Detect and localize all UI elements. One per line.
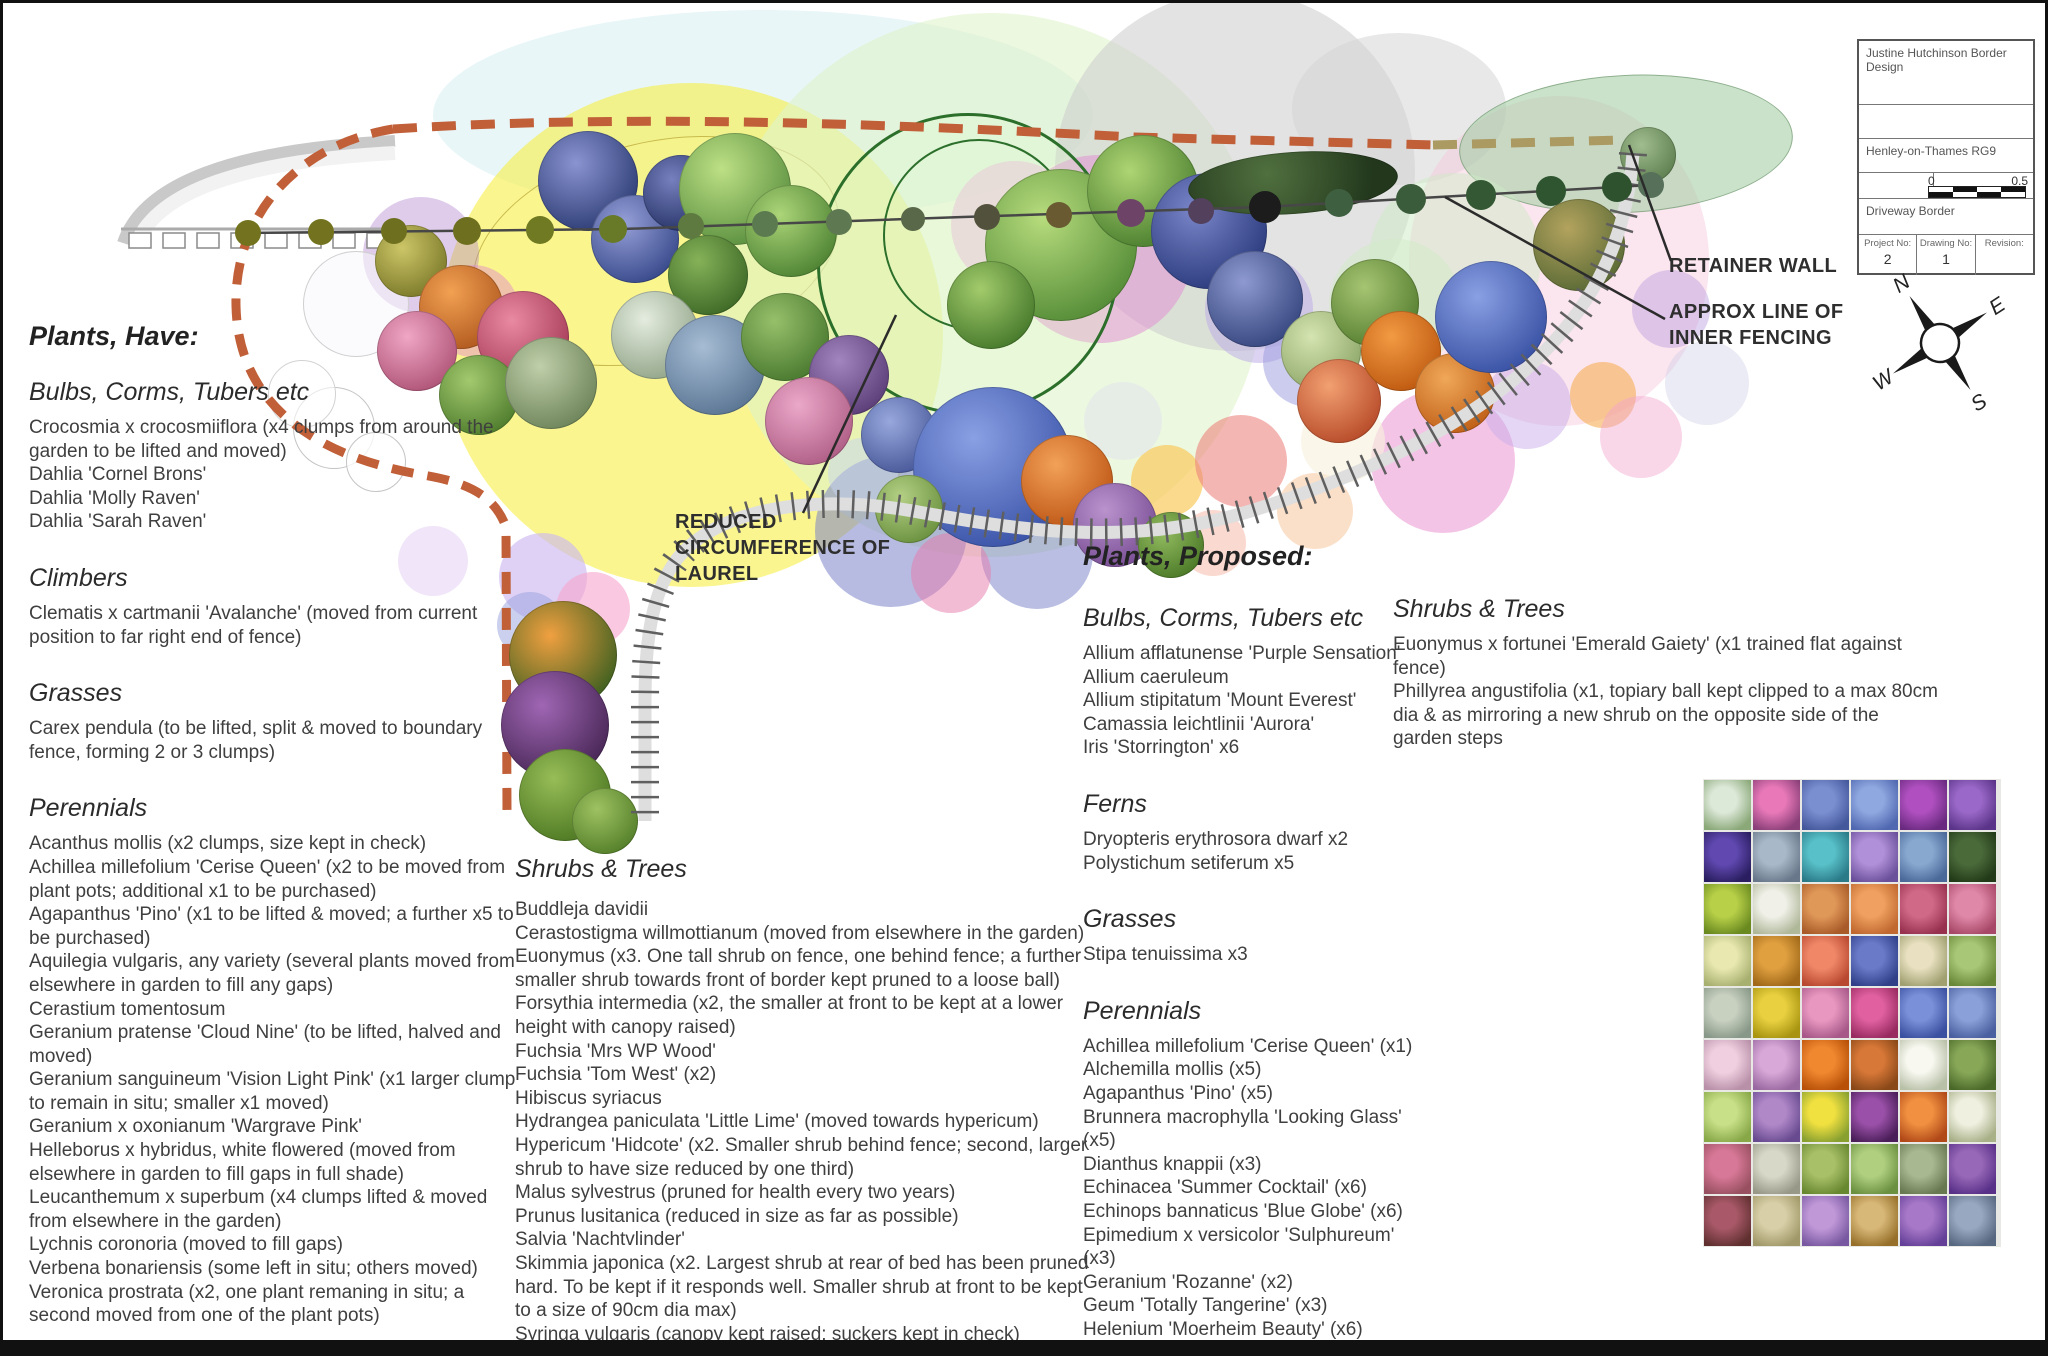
page-bottom-rule bbox=[3, 1340, 2045, 1353]
fence-post-dot bbox=[826, 209, 852, 235]
title-block-drawing-title-cell: Driveway Border bbox=[1859, 199, 2033, 235]
plant-item: Carex pendula (to be lifted, split & mov… bbox=[29, 717, 521, 764]
title-block-scale-cell: 0 0.5 bbox=[1859, 173, 2033, 199]
plant-item: Polystichum setiferum x5 bbox=[1083, 852, 1419, 876]
plants-have-column: Plants, Have: Bulbs, Corms, Tubers etcCr… bbox=[29, 321, 521, 1356]
title-block-empty-cell bbox=[1859, 105, 2033, 139]
plant-item: Veronica prostrata (x2, one plant remani… bbox=[29, 1281, 521, 1328]
fence-post-dot bbox=[1536, 176, 1566, 206]
plant-thumbnail bbox=[1851, 1144, 1898, 1194]
plant-thumbnail bbox=[1851, 1196, 1898, 1246]
plant-item: Dryopteris erythrosora dwarf x2 bbox=[1083, 828, 1419, 852]
plant-thumbnail bbox=[1900, 1144, 1947, 1194]
compass-n: N bbox=[1889, 270, 1915, 298]
plant-item: Prunus lusitanica (reduced in size as fa… bbox=[515, 1205, 1091, 1229]
proposed-shrubs-heading: Shrubs & Trees bbox=[1393, 595, 1938, 624]
plant-item: Hibiscus syriacus bbox=[515, 1087, 1091, 1111]
plant-thumbnail bbox=[1704, 884, 1751, 934]
plant-section: GrassesStipa tenuissima x3 bbox=[1083, 905, 1419, 967]
plant-thumbnail bbox=[1802, 936, 1849, 986]
fence-post-dot bbox=[1117, 199, 1145, 227]
plant-item: Crocosmia x crocosmiiflora (x4 clumps fr… bbox=[29, 416, 521, 463]
plant-section: PerennialsAcanthus mollis (x2 clumps, si… bbox=[29, 794, 521, 1327]
plant-item: Euonymus (x3. One tall shrub on fence, o… bbox=[515, 945, 1091, 992]
section-heading: Bulbs, Corms, Tubers etc bbox=[29, 378, 521, 407]
plant-thumbnail bbox=[1753, 936, 1800, 986]
plant-item: Buddleja davidii bbox=[515, 898, 1091, 922]
plant-thumbnail bbox=[1753, 780, 1800, 830]
fence-post-dot bbox=[678, 213, 704, 239]
plant-section: Bulbs, Corms, Tubers etcAllium afflatune… bbox=[1083, 604, 1419, 760]
plant-thumbnail bbox=[1704, 1092, 1751, 1142]
plant-thumbnail bbox=[1753, 1196, 1800, 1246]
fence-post-dot bbox=[1602, 172, 1632, 202]
plant-thumbnail bbox=[1900, 780, 1947, 830]
plant-thumbnail bbox=[1802, 1040, 1849, 1090]
plant-thumbnail bbox=[1949, 832, 1996, 882]
plant-item: Geranium sanguineum 'Vision Light Pink' … bbox=[29, 1068, 521, 1115]
plant-item: Achillea millefolium 'Cerise Queen' (x1) bbox=[1083, 1035, 1419, 1059]
plant-thumbnail bbox=[1753, 1144, 1800, 1194]
plant-item: Salvia 'Nachtvlinder' bbox=[515, 1228, 1091, 1252]
compass-hub bbox=[1914, 317, 1967, 370]
scale-checker bbox=[1928, 186, 2026, 198]
fence-post-dot bbox=[1249, 191, 1281, 223]
plant-thumbnail bbox=[1753, 884, 1800, 934]
plant-item: Dahlia 'Molly Raven' bbox=[29, 487, 521, 511]
plant-item: Cerastium tomentosum bbox=[29, 998, 521, 1022]
plant-thumbnail bbox=[1851, 884, 1898, 934]
plant-thumbnail bbox=[1704, 780, 1751, 830]
fence-post-dot bbox=[1325, 189, 1353, 217]
plant-item: Fuchsia 'Mrs WP Wood' bbox=[515, 1040, 1091, 1064]
plant-item: Epimedium x versicolor 'Sulphureum' (x3) bbox=[1083, 1224, 1419, 1271]
plant-item: Dianthus knappii (x3) bbox=[1083, 1153, 1419, 1177]
plant-thumbnail bbox=[1949, 1040, 1996, 1090]
leader-reduced-laurel bbox=[803, 315, 896, 513]
plant-item: Geranium x oxonianum 'Wargrave Pink' bbox=[29, 1115, 521, 1139]
fence-post-dot bbox=[1188, 198, 1214, 224]
plant-thumbnail bbox=[1949, 936, 1996, 986]
plant-thumbnail bbox=[1704, 1040, 1751, 1090]
fence-post-dot bbox=[381, 218, 407, 244]
plant-thumbnail bbox=[1851, 936, 1898, 986]
plant-item: Forsythia intermedia (x2, the smaller at… bbox=[515, 992, 1091, 1039]
plant-thumbnail bbox=[1753, 1092, 1800, 1142]
plants-proposed-title: Plants, Proposed: bbox=[1083, 541, 1419, 572]
plant-thumbnail bbox=[1753, 832, 1800, 882]
plant-item: Echinops bannaticus 'Blue Globe' (x6) bbox=[1083, 1200, 1419, 1224]
plant-thumbnail bbox=[1900, 988, 1947, 1038]
drawing-title: Driveway Border bbox=[1859, 199, 2033, 223]
plant-section: GrassesCarex pendula (to be lifted, spli… bbox=[29, 679, 521, 764]
plant-thumbnail bbox=[1802, 1092, 1849, 1142]
plant-item: Alchemilla mollis (x5) bbox=[1083, 1058, 1419, 1082]
garden-border-design-page: REDUCED CIRCUMFERENCE OF LAUREL RETAINER… bbox=[0, 0, 2048, 1356]
plant-thumbnail bbox=[1704, 936, 1751, 986]
section-heading: Perennials bbox=[1083, 997, 1419, 1026]
fence-post-dot bbox=[752, 211, 778, 237]
section-heading: Bulbs, Corms, Tubers etc bbox=[1083, 604, 1419, 633]
plant-item: Euonymus x fortunei 'Emerald Gaiety' (x1… bbox=[1393, 633, 1938, 680]
plant-item: Acanthus mollis (x2 clumps, size kept in… bbox=[29, 832, 521, 856]
compass-w: W bbox=[1869, 364, 1900, 395]
plant-thumbnail bbox=[1949, 1196, 1996, 1246]
shrubs-trees-column: Shrubs & Trees Buddleja davidiiCerastost… bbox=[515, 855, 1091, 1346]
plant-thumbnail bbox=[1802, 988, 1849, 1038]
proposed-shrubs-column: Shrubs & Trees Euonymus x fortunei 'Emer… bbox=[1393, 595, 1938, 751]
plant-thumbnail bbox=[1949, 780, 1996, 830]
fence-post-dot bbox=[526, 216, 554, 244]
plant-thumbnail bbox=[1900, 884, 1947, 934]
plant-item: Malus sylvestrus (pruned for health ever… bbox=[515, 1181, 1091, 1205]
plants-have-sections: Bulbs, Corms, Tubers etcCrocosmia x croc… bbox=[29, 378, 521, 1328]
plant-item: Skimmia japonica (x2. Largest shrub at r… bbox=[515, 1252, 1091, 1323]
section-heading: Perennials bbox=[29, 794, 521, 823]
fence-post-dot bbox=[453, 217, 481, 245]
title-block: Justine Hutchinson Border Design Henley-… bbox=[1857, 39, 2035, 275]
leader-retainer-wall bbox=[1629, 145, 1671, 261]
plant-thumbnail bbox=[1704, 832, 1751, 882]
plant-thumbnail bbox=[1851, 1092, 1898, 1142]
plant-section: ClimbersClematis x cartmanii 'Avalanche'… bbox=[29, 564, 521, 649]
fence-post-dot bbox=[1638, 172, 1664, 198]
fence-post-dot bbox=[599, 215, 627, 243]
plant-item: Clematis x cartmanii 'Avalanche' (moved … bbox=[29, 602, 521, 649]
plant-item: Echinacea 'Summer Cocktail' (x6) bbox=[1083, 1176, 1419, 1200]
plant-thumbnail bbox=[1900, 1040, 1947, 1090]
fence-post-dot bbox=[1046, 202, 1072, 228]
plant-item: Geum 'Totally Tangerine' (x3) bbox=[1083, 1294, 1419, 1318]
plant-item: Iris 'Storrington' x6 bbox=[1083, 736, 1419, 760]
plant-item: Camassia leichtlinii 'Aurora' bbox=[1083, 713, 1419, 737]
plant-item: Agapanthus 'Pino' (x5) bbox=[1083, 1082, 1419, 1106]
section-heading: Ferns bbox=[1083, 790, 1419, 819]
designer-name: Justine Hutchinson Border Design bbox=[1859, 41, 2033, 79]
scale-zero: 0 bbox=[1928, 174, 1935, 188]
plant-item: Achillea millefolium 'Cerise Queen' (x2 … bbox=[29, 856, 521, 903]
proposed-shrubs-items: Euonymus x fortunei 'Emerald Gaiety' (x1… bbox=[1393, 633, 1938, 751]
plant-thumbnail bbox=[1704, 988, 1751, 1038]
plant-thumbnail bbox=[1851, 1040, 1898, 1090]
compass-s: S bbox=[1967, 390, 1991, 417]
plant-thumbnail bbox=[1802, 832, 1849, 882]
plant-item: Geranium pratense 'Cloud Nine' (to be li… bbox=[29, 1021, 521, 1068]
plant-item: Hypericum 'Hidcote' (x2. Smaller shrub b… bbox=[515, 1134, 1091, 1181]
plant-thumbnail bbox=[1802, 780, 1849, 830]
plant-item: Allium stipitatum 'Mount Everest' bbox=[1083, 689, 1419, 713]
plant-item: Agapanthus 'Pino' (x1 to be lifted & mov… bbox=[29, 903, 521, 950]
section-heading: Climbers bbox=[29, 564, 521, 593]
plant-item: Fuchsia 'Tom West' (x2) bbox=[515, 1063, 1091, 1087]
plant-item: Geranium 'Rozanne' (x2) bbox=[1083, 1271, 1419, 1295]
plant-thumbnail bbox=[1900, 1092, 1947, 1142]
label-approx-line: APPROX LINE OF INNER FENCING bbox=[1669, 299, 1884, 351]
plant-item: Allium afflatunense 'Purple Sensation' bbox=[1083, 642, 1419, 666]
plant-item: Dahlia 'Cornel Brons' bbox=[29, 463, 521, 487]
plant-item: Helleborus x hybridus, white flowered (m… bbox=[29, 1139, 521, 1186]
plant-item: Brunnera macrophylla 'Looking Glass' (x5… bbox=[1083, 1106, 1419, 1153]
compass-rose: N E S W bbox=[1855, 258, 2025, 428]
shrubs-trees-items: Buddleja davidiiCerastostigma willmottia… bbox=[515, 898, 1091, 1346]
plant-item: Stipa tenuissima x3 bbox=[1083, 943, 1419, 967]
plants-proposed-column: Plants, Proposed: Bulbs, Corms, Tubers e… bbox=[1083, 541, 1419, 1356]
section-heading: Grasses bbox=[29, 679, 521, 708]
plant-item: Allium caeruleum bbox=[1083, 666, 1419, 690]
plant-section: Bulbs, Corms, Tubers etcCrocosmia x croc… bbox=[29, 378, 521, 534]
site-location: Henley-on-Thames RG9 bbox=[1859, 139, 2033, 163]
plant-thumbnail bbox=[1753, 1040, 1800, 1090]
plant-item: Hydrangea paniculata 'Little Lime' (move… bbox=[515, 1110, 1091, 1134]
label-reduced-laurel: REDUCED CIRCUMFERENCE OF LAUREL bbox=[675, 509, 925, 587]
plant-thumbnail bbox=[1851, 780, 1898, 830]
title-block-location-cell: Henley-on-Thames RG9 bbox=[1859, 139, 2033, 173]
fence-post-dot bbox=[235, 220, 261, 246]
plant-thumbnail bbox=[1802, 884, 1849, 934]
plants-proposed-sections: Bulbs, Corms, Tubers etcAllium afflatune… bbox=[1083, 604, 1419, 1356]
plant-item: Lychnis coronoria (moved to fill gaps) bbox=[29, 1233, 521, 1257]
plant-item: Leucanthemum x superbum (x4 clumps lifte… bbox=[29, 1186, 521, 1233]
plant-item: Aquilegia vulgaris, any variety (several… bbox=[29, 950, 521, 997]
plant-photo-grid bbox=[1703, 779, 2001, 1247]
plant-thumbnail bbox=[1900, 832, 1947, 882]
fence-posts bbox=[235, 172, 1664, 246]
plant-section: PerennialsAchillea millefolium 'Cerise Q… bbox=[1083, 997, 1419, 1356]
plant-item: Verbena bonariensis (some left in situ; … bbox=[29, 1257, 521, 1281]
plant-thumbnail bbox=[1802, 1144, 1849, 1194]
plant-thumbnail bbox=[1802, 1196, 1849, 1246]
plant-thumbnail bbox=[1949, 1092, 1996, 1142]
plant-item: Helenium 'Moerheim Beauty' (x6) bbox=[1083, 1318, 1419, 1342]
fence-post-dot bbox=[1466, 180, 1496, 210]
plant-thumbnail bbox=[1900, 936, 1947, 986]
fence-post-dot bbox=[901, 207, 925, 231]
plant-thumbnail bbox=[1704, 1144, 1751, 1194]
shrubs-trees-heading: Shrubs & Trees bbox=[515, 855, 1091, 884]
drawing-no-label: Drawing No: bbox=[1917, 238, 1974, 249]
plant-item: Cerastostigma willmottianum (moved from … bbox=[515, 922, 1091, 946]
fence-post-dot bbox=[1396, 184, 1426, 214]
plant-thumbnail bbox=[1949, 1144, 1996, 1194]
plant-thumbnail bbox=[1949, 884, 1996, 934]
section-heading: Grasses bbox=[1083, 905, 1419, 934]
plant-thumbnail bbox=[1704, 1196, 1751, 1246]
scale-half: 0.5 bbox=[2011, 174, 2028, 188]
plant-item: Phillyrea angustifolia (x1, topiary ball… bbox=[1393, 680, 1938, 751]
fence-post-dot bbox=[974, 204, 1000, 230]
plant-section: FernsDryopteris erythrosora dwarf x2Poly… bbox=[1083, 790, 1419, 875]
revision-label: Revision: bbox=[1976, 238, 2033, 249]
fence-post-dot bbox=[308, 219, 334, 245]
compass-e: E bbox=[1985, 292, 2010, 319]
plant-thumbnail bbox=[1753, 988, 1800, 1038]
plant-thumbnail bbox=[1851, 832, 1898, 882]
plant-item: Dahlia 'Sarah Raven' bbox=[29, 510, 521, 534]
scale-bar: 0 0.5 bbox=[1928, 174, 2028, 198]
plants-have-title: Plants, Have: bbox=[29, 321, 521, 352]
plant-thumbnail bbox=[1851, 988, 1898, 1038]
title-block-designer-cell: Justine Hutchinson Border Design bbox=[1859, 41, 2033, 105]
plant-thumbnail bbox=[1900, 1196, 1947, 1246]
project-no-label: Project No: bbox=[1859, 238, 1916, 249]
plant-thumbnail bbox=[1949, 988, 1996, 1038]
